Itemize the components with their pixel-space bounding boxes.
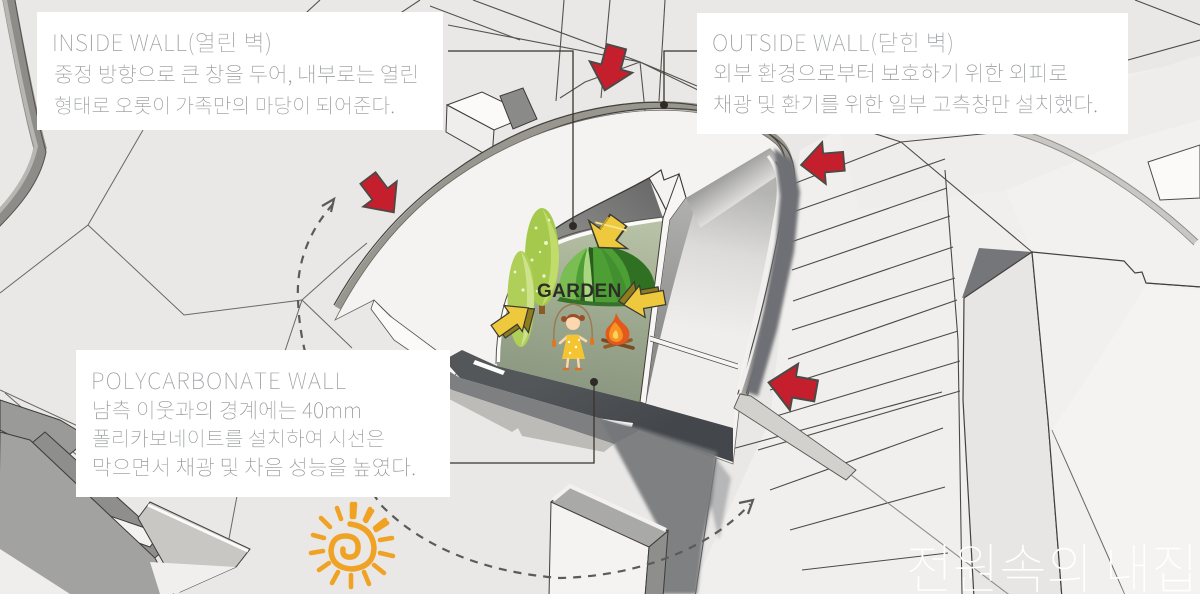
svg-text:GARDEN: GARDEN xyxy=(537,281,622,302)
